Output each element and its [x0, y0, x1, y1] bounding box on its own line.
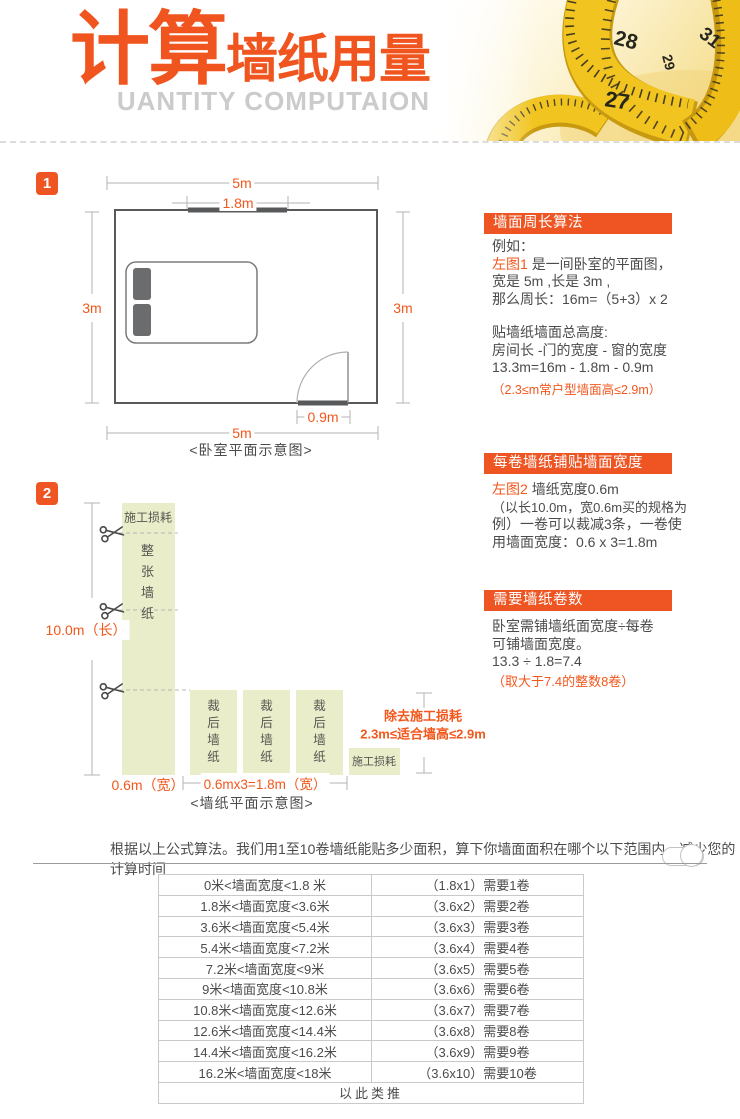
panel-note: （2.3≤m常户型墙面高≤2.9m）: [492, 382, 722, 400]
dim-total-width: 0.6mx3=1.8m（宽）: [201, 773, 330, 793]
text-line: 左图2 墙纸宽度0.6m: [492, 481, 727, 499]
dim-roll-width: 0.6m（宽）: [108, 775, 187, 795]
tape-number: 27: [603, 86, 631, 115]
text-line: 例）一卷可以裁减3条，一卷使: [492, 516, 727, 534]
figure-ref: 左图1: [492, 256, 528, 272]
table-row: 14.4米<墙面宽度<16.2米 （3.6x9）需要9卷: [159, 1041, 584, 1062]
page-title: 计算 墙纸用量 UANTITY COMPUTAION: [70, 4, 430, 117]
range-cell: 0米<墙面宽度<1.8 米: [159, 875, 372, 896]
cut-strip-label: 裁后墙纸: [206, 698, 221, 766]
panel-rollcount-body: 卧室需铺墙纸面宽度÷每卷 可铺墙面宽度。 13.3 ÷ 1.8=7.4 （取大于…: [492, 618, 727, 690]
table-row: 5.4米<墙面宽度<7.2米 （3.6x4）需要4卷: [159, 937, 584, 958]
text-line: 左图1 是一间卧室的平面图，: [492, 256, 722, 274]
dim-left-height: 3m: [79, 300, 104, 316]
page: 28 31 29 27 计算 墙纸用量 UANTITY COMPUTAION 1: [0, 0, 740, 1119]
table-row: 10.8米<墙面宽度<12.6米 （3.6x7）需要7卷: [159, 999, 584, 1020]
table-row: 16.2米<墙面宽度<18米 （3.6x10）需要10卷: [159, 1062, 584, 1083]
text-line: 宽是 5m ,长是 3m ,: [492, 273, 722, 291]
table-footer-row: 以此类推: [159, 1082, 584, 1103]
pillow: [133, 304, 151, 336]
dim-bottom-width: 5m: [229, 425, 254, 441]
panel-rollwidth-body: 左图2 墙纸宽度0.6m （以长10.0m，宽0.6m买的规格为 例）一卷可以裁…: [492, 481, 727, 551]
text-line: 13.3 ÷ 1.8=7.4: [492, 653, 727, 671]
rolls-cell: （3.6x6）需要6卷: [372, 978, 584, 999]
floorplan-caption: <卧室平面示意图>: [186, 440, 315, 460]
dim-door-width: 0.9m: [304, 409, 341, 425]
strip-drawing: [0, 470, 480, 820]
table-row: 12.6米<墙面宽度<14.4米 （3.6x8）需要8卷: [159, 1020, 584, 1041]
panel-perimeter-title: 墙面周长算法: [484, 213, 672, 234]
table-row: 7.2米<墙面宽度<9米 （3.6x5）需要5卷: [159, 958, 584, 979]
dim-top-width: 5m: [229, 175, 254, 191]
measuring-tape-photo: 28 31 29 27: [440, 0, 740, 141]
rolls-cell: （3.6x2）需要2卷: [372, 895, 584, 916]
panel-rollcount-title: 需要墙纸卷数: [484, 590, 672, 611]
text-line: 例如：: [492, 238, 722, 256]
title-small: 墙纸用量: [226, 17, 430, 92]
table-row: 3.6米<墙面宽度<5.4米 （3.6x3）需要3卷: [159, 916, 584, 937]
text-line: 房间长 -门的宽度 - 窗的宽度: [492, 342, 722, 360]
pillow: [133, 268, 151, 300]
rolls-cell: （3.6x3）需要3卷: [372, 916, 584, 937]
range-cell: 14.4米<墙面宽度<16.2米: [159, 1041, 372, 1062]
header-divider: [0, 141, 740, 143]
range-cell: 1.8米<墙面宽度<3.6米: [159, 895, 372, 916]
table-footer: 以此类推: [159, 1082, 584, 1103]
panel-perimeter-body: 例如： 左图1 是一间卧室的平面图， 宽是 5m ,长是 3m , 那么周长：1…: [492, 238, 722, 399]
title-big: 计算: [70, 4, 226, 96]
text-line: 可铺墙面宽度。: [492, 636, 727, 654]
section-divider: [33, 863, 707, 864]
text-rest: 墙纸宽度0.6m: [532, 481, 619, 497]
dim-roll-length: 10.0m（长）: [43, 620, 130, 640]
strip-caption: <墙纸平面示意图>: [187, 793, 316, 813]
table-row: 9米<墙面宽度<10.8米 （3.6x6）需要6卷: [159, 978, 584, 999]
bedroom-floorplan-diagram: 1 5m 1.8m: [0, 160, 470, 465]
panel-rollwidth-title: 每卷墙纸铺贴墙面宽度: [484, 453, 672, 474]
full-roll-label: 整张墙纸: [140, 540, 155, 624]
dim-right-height: 3m: [390, 300, 415, 316]
rolls-cell: （3.6x9）需要9卷: [372, 1041, 584, 1062]
dim-window-width: 1.8m: [219, 195, 256, 211]
figure-ref: 左图2: [492, 481, 528, 497]
text-line: 贴墙纸墙面总高度:: [492, 324, 722, 342]
range-cell: 7.2米<墙面宽度<9米: [159, 958, 372, 979]
range-cell: 16.2米<墙面宽度<18米: [159, 1062, 372, 1083]
range-cell: 3.6米<墙面宽度<5.4米: [159, 916, 372, 937]
wallpaper-strip-diagram: 2 施工损耗 整张墙纸 裁: [0, 470, 480, 820]
range-cell: 5.4米<墙面宽度<7.2米: [159, 937, 372, 958]
text-line: 13.3m=16m - 1.8m - 0.9m: [492, 359, 722, 377]
text-line: 用墙面宽度：0.6 x 3=1.8m: [492, 534, 727, 552]
range-cell: 12.6米<墙面宽度<14.4米: [159, 1020, 372, 1041]
rolls-cell: （3.6x4）需要4卷: [372, 937, 584, 958]
rolls-cell: （1.8x1）需要1卷: [372, 875, 584, 896]
cut-strip-label: 裁后墙纸: [312, 698, 327, 766]
text-rest: 是一间卧室的平面图，: [532, 256, 672, 272]
text-line: 那么周长：16m=（5+3）x 2: [492, 291, 722, 309]
panel-note: （取大于7.4的整数8卷）: [492, 673, 727, 691]
rolls-cell: （3.6x8）需要8卷: [372, 1020, 584, 1041]
loss-box-label: 施工损耗: [349, 753, 399, 769]
range-cell: 10.8米<墙面宽度<12.6米: [159, 999, 372, 1020]
cut-strip-label: 裁后墙纸: [259, 698, 274, 766]
text-line: （以长10.0m，宽0.6m买的规格为: [492, 499, 727, 517]
rolls-cell: （3.6x5）需要5卷: [372, 958, 584, 979]
table-row: 0米<墙面宽度<1.8 米 （1.8x1）需要1卷: [159, 875, 584, 896]
loss-note-line2: 2.3m≤适合墙高≤2.9m: [357, 724, 489, 743]
range-cell: 9米<墙面宽度<10.8米: [159, 978, 372, 999]
loss-note-line1: 除去施工损耗: [381, 706, 465, 725]
rolls-cell: （3.6x7）需要7卷: [372, 999, 584, 1020]
text-line: 卧室需铺墙纸面宽度÷每卷: [492, 618, 727, 636]
strip-top-label: 施工损耗: [121, 509, 175, 526]
rolls-table: 0米<墙面宽度<1.8 米 （1.8x1）需要1卷 1.8米<墙面宽度<3.6米…: [158, 874, 584, 1104]
rolls-cell: （3.6x10）需要10卷: [372, 1062, 584, 1083]
table-intro-text: 根据以上公式算法。我们用1至10卷墙纸能贴多少面积，算下你墙面面积在哪个以下范围…: [110, 839, 740, 879]
table-row: 1.8米<墙面宽度<3.6米 （3.6x2）需要2卷: [159, 895, 584, 916]
title-subtitle: UANTITY COMPUTAION: [70, 86, 430, 117]
